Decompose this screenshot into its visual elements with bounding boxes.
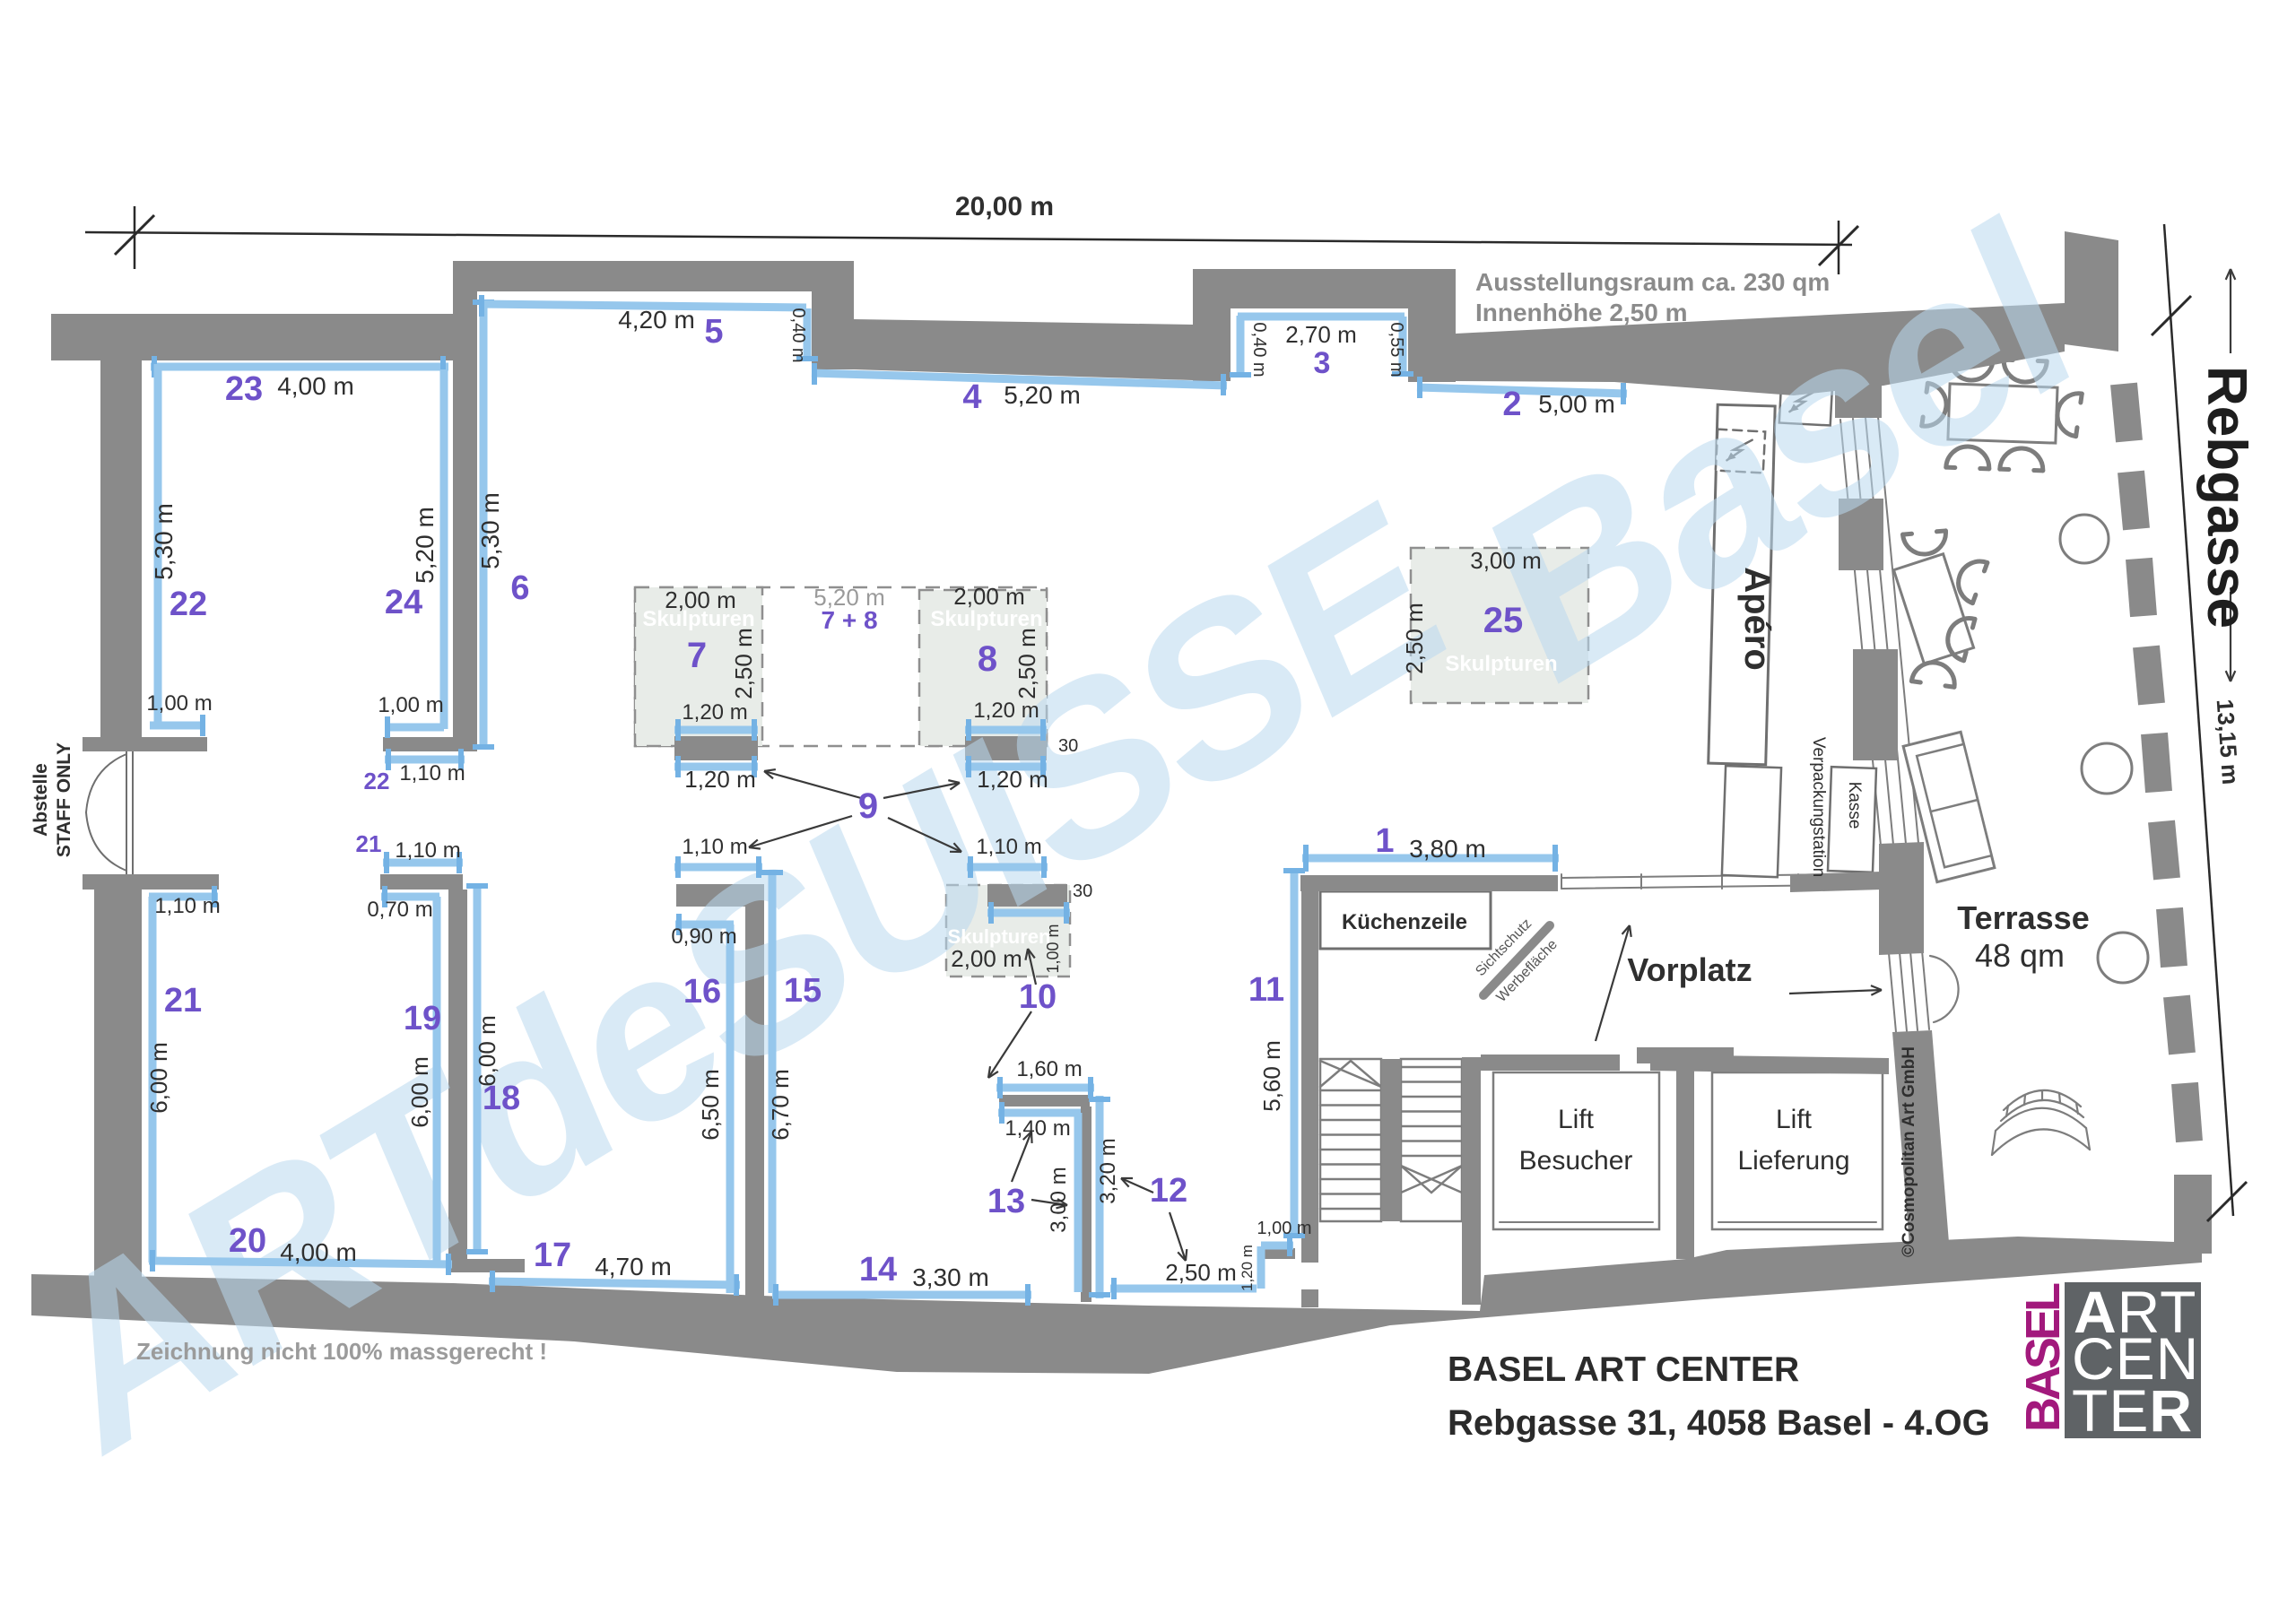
svg-text:20,00 m: 20,00 m (955, 192, 1054, 221)
svg-text:2,50 m: 2,50 m (1165, 1259, 1237, 1286)
svg-text:Skulpturen: Skulpturen (642, 607, 754, 631)
svg-text:11: 11 (1248, 971, 1284, 1009)
svg-text:3: 3 (1314, 346, 1331, 380)
svg-text:1,00 m: 1,00 m (1257, 1219, 1311, 1238)
svg-text:6,00 m: 6,00 m (145, 1042, 172, 1114)
svg-text:2: 2 (1502, 386, 1521, 423)
svg-text:1,00 m: 1,00 m (1044, 924, 1062, 973)
svg-text:1: 1 (1375, 822, 1394, 860)
svg-text:2,50 m: 2,50 m (1401, 603, 1428, 674)
svg-text:Lieferung: Lieferung (1737, 1146, 1849, 1176)
svg-text:48 qm: 48 qm (1975, 937, 2065, 974)
svg-text:5,20 m: 5,20 m (1004, 381, 1081, 409)
svg-text:Besucher: Besucher (1519, 1146, 1633, 1176)
svg-text:6,00 m: 6,00 m (474, 1015, 500, 1087)
svg-text:BASEL: BASEL (2016, 1283, 2070, 1432)
svg-text:2,50 m: 2,50 m (1013, 628, 1040, 699)
svg-text:9: 9 (858, 786, 878, 826)
svg-text:1,00 m: 1,00 m (146, 691, 212, 716)
svg-text:30: 30 (1073, 881, 1092, 901)
svg-text:6: 6 (510, 569, 529, 607)
svg-text:4,00 m: 4,00 m (280, 1238, 357, 1266)
svg-text:0,40 m: 0,40 m (788, 308, 808, 362)
svg-text:14: 14 (859, 1251, 897, 1289)
svg-text:21: 21 (356, 830, 382, 857)
svg-text:1,20 m: 1,20 m (682, 700, 747, 725)
svg-text:1,00 m: 1,00 m (378, 693, 443, 717)
svg-text:1,10 m: 1,10 m (399, 761, 465, 785)
svg-text:Rebgasse 31, 4058 Basel - 4.OG: Rebgasse 31, 4058 Basel - 4.OG (1448, 1403, 1990, 1443)
svg-text:12: 12 (1150, 1172, 1187, 1210)
svg-text:24: 24 (385, 584, 422, 621)
svg-text:Terrasse: Terrasse (1957, 899, 2089, 936)
svg-text:18: 18 (483, 1080, 520, 1117)
svg-text:0,90 m: 0,90 m (671, 924, 736, 949)
svg-text:22: 22 (170, 586, 207, 623)
svg-text:Innenhöhe 2,50 m: Innenhöhe 2,50 m (1475, 299, 1688, 326)
svg-text:Skulpturen: Skulpturen (930, 607, 1042, 631)
svg-text:Kasse: Kasse (1845, 782, 1864, 829)
svg-text:8: 8 (978, 639, 997, 679)
svg-text:5,60 m: 5,60 m (1258, 1040, 1285, 1112)
svg-text:1,10 m: 1,10 m (154, 894, 220, 918)
svg-text:16: 16 (683, 973, 721, 1011)
svg-text:10: 10 (1019, 978, 1057, 1016)
svg-text:4,00 m: 4,00 m (277, 372, 354, 400)
svg-text:0,40 m: 0,40 m (1249, 322, 1269, 377)
svg-text:1,40 m: 1,40 m (1004, 1116, 1070, 1141)
svg-text:6,00 m: 6,00 m (406, 1056, 433, 1128)
svg-text:Lift: Lift (1558, 1105, 1595, 1134)
svg-text:4,20 m: 4,20 m (618, 306, 695, 334)
svg-text:5,30 m: 5,30 m (476, 492, 504, 569)
svg-text:Vorplatz: Vorplatz (1627, 951, 1752, 988)
svg-text:20: 20 (229, 1222, 266, 1260)
svg-text:1,10 m: 1,10 m (395, 838, 460, 863)
svg-text:1,20 m: 1,20 m (973, 699, 1039, 723)
svg-text:7 + 8: 7 + 8 (821, 606, 877, 634)
svg-text:6,50 m: 6,50 m (697, 1069, 724, 1141)
svg-text:19: 19 (404, 1000, 441, 1037)
svg-text:©Cosmopolitan Art GmbH: ©Cosmopolitan Art GmbH (1900, 1046, 1918, 1257)
svg-text:Skulpturen: Skulpturen (1445, 652, 1557, 676)
svg-text:1,10 m: 1,10 m (682, 835, 747, 859)
svg-text:23: 23 (225, 370, 263, 408)
svg-text:2,70 m: 2,70 m (1285, 321, 1357, 348)
svg-text:4,70 m: 4,70 m (595, 1253, 672, 1280)
svg-text:21: 21 (164, 982, 202, 1020)
svg-text:3,30 m: 3,30 m (912, 1263, 989, 1291)
svg-text:Apéro: Apéro (1737, 567, 1777, 671)
svg-text:STAFF ONLY: STAFF ONLY (54, 742, 74, 857)
svg-text:2,00 m: 2,00 m (951, 945, 1022, 972)
svg-text:BASEL ART CENTER: BASEL ART CENTER (1448, 1350, 1799, 1389)
svg-text:1,20 m: 1,20 m (684, 766, 756, 793)
svg-text:22: 22 (364, 768, 390, 794)
svg-text:0,55 m: 0,55 m (1387, 322, 1406, 377)
svg-text:4: 4 (962, 378, 981, 416)
svg-text:1,20 m: 1,20 m (1239, 1245, 1256, 1291)
svg-text:2,50 m: 2,50 m (730, 628, 757, 699)
svg-text:2,00 m: 2,00 m (953, 583, 1025, 610)
svg-text:Küchenzeile: Küchenzeile (1342, 910, 1467, 934)
svg-text:7: 7 (687, 636, 707, 675)
svg-text:3,00 m: 3,00 m (1047, 1167, 1071, 1232)
svg-text:6,70 m: 6,70 m (767, 1069, 794, 1141)
svg-text:3,20 m: 3,20 m (1096, 1138, 1120, 1203)
svg-text:3,80 m: 3,80 m (1409, 835, 1486, 863)
svg-text:17: 17 (534, 1237, 571, 1274)
svg-text:1,20 m: 1,20 m (977, 766, 1048, 793)
svg-text:5: 5 (704, 313, 723, 351)
svg-text:5,20 m: 5,20 m (411, 507, 439, 584)
svg-text:1,10 m: 1,10 m (976, 835, 1041, 859)
svg-text:25: 25 (1483, 601, 1524, 640)
svg-text:30: 30 (1058, 736, 1078, 756)
svg-text:Zeichnung nicht 100% massgerec: Zeichnung nicht 100% massgerecht ! (136, 1338, 547, 1365)
svg-text:5,30 m: 5,30 m (150, 503, 178, 580)
svg-text:13: 13 (987, 1183, 1025, 1220)
svg-text:Abstelle: Abstelle (30, 763, 51, 837)
svg-text:3,00 m: 3,00 m (1470, 547, 1542, 574)
svg-text:Lift: Lift (1776, 1105, 1813, 1134)
svg-text:0,70 m: 0,70 m (367, 898, 432, 922)
svg-text:TER: TER (2072, 1377, 2193, 1444)
svg-text:Ausstellungsraum ca. 230 qm: Ausstellungsraum ca. 230 qm (1475, 268, 1830, 296)
svg-text:1,60 m: 1,60 m (1016, 1057, 1082, 1081)
svg-text:Verpackungstation: Verpackungstation (1809, 737, 1828, 877)
svg-text:5,00 m: 5,00 m (1538, 390, 1615, 418)
svg-text:Rebgasse: Rebgasse (2196, 366, 2257, 629)
svg-text:15: 15 (784, 972, 822, 1010)
